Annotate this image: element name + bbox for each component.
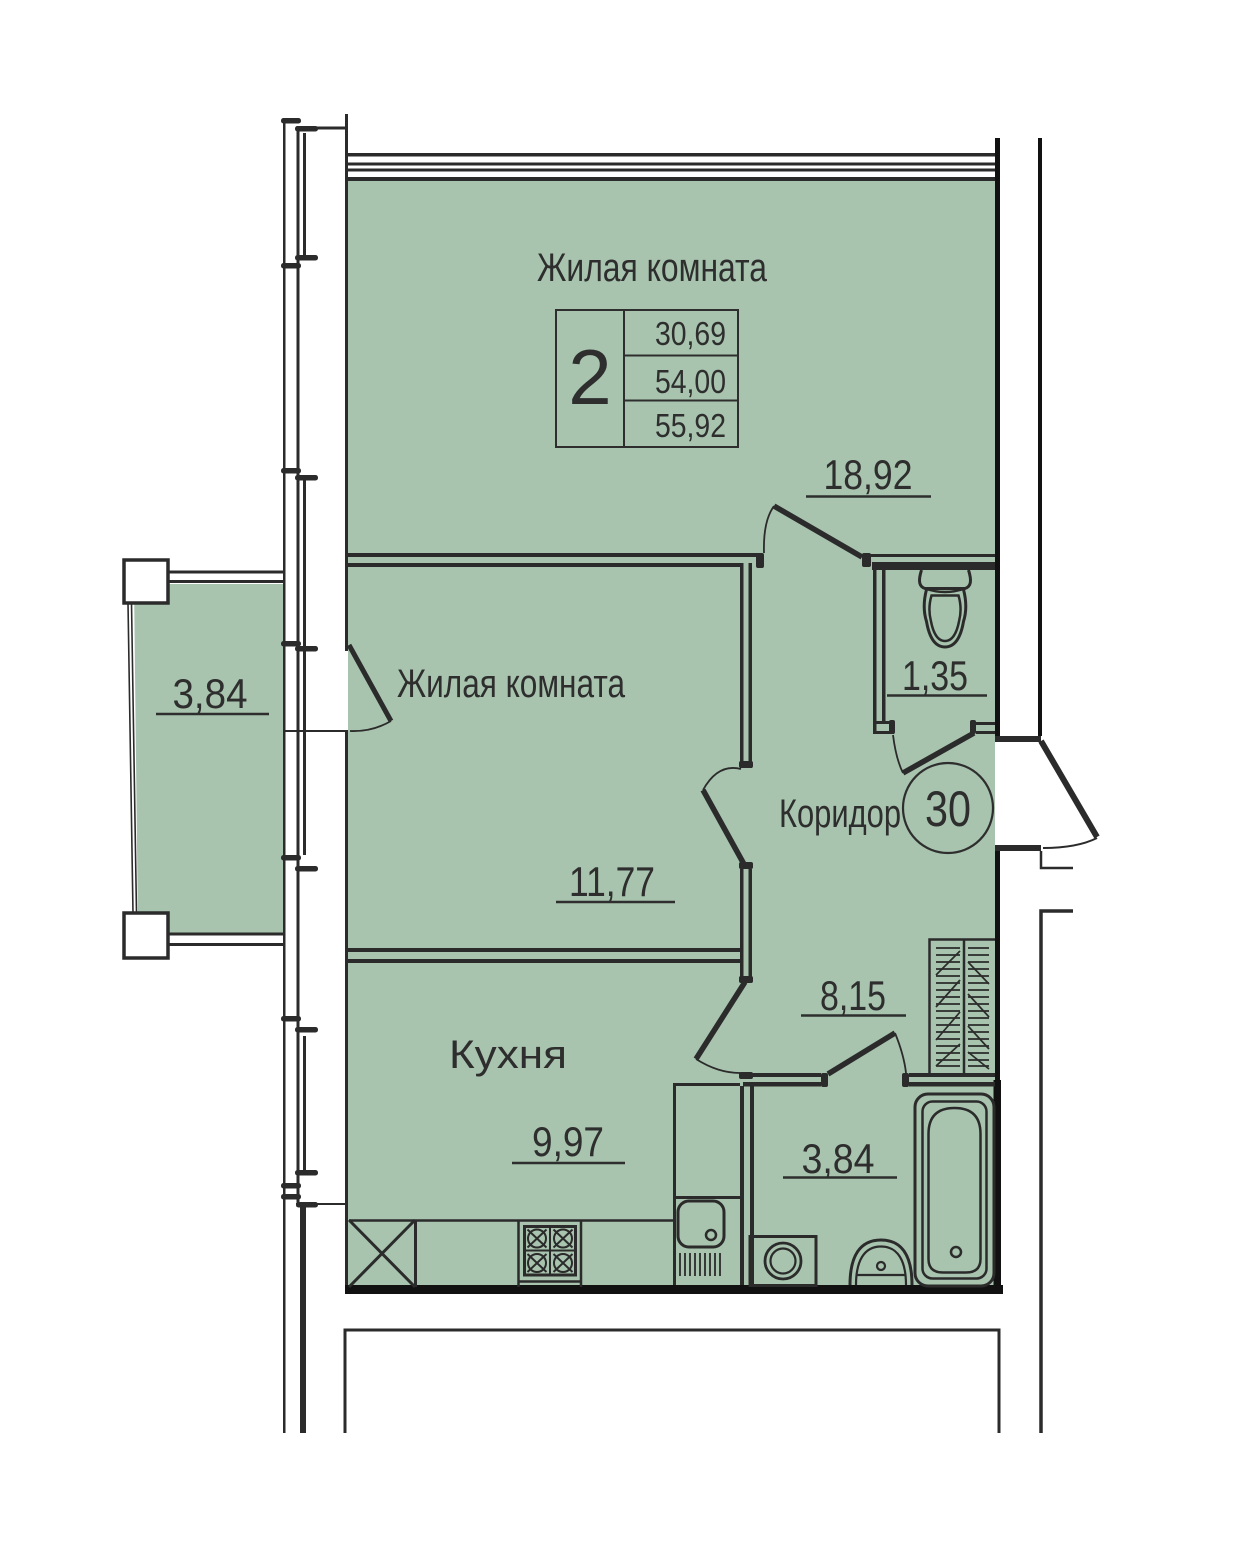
svg-text:Жилая комната: Жилая комната xyxy=(397,662,626,706)
svg-text:54,00: 54,00 xyxy=(655,363,726,400)
svg-text:Жилая комната: Жилая комната xyxy=(537,246,768,290)
svg-text:1,35: 1,35 xyxy=(902,652,968,699)
svg-text:8,15: 8,15 xyxy=(820,972,886,1019)
svg-text:30: 30 xyxy=(925,781,971,837)
svg-text:30,69: 30,69 xyxy=(655,315,726,352)
svg-text:Коридор: Коридор xyxy=(779,792,901,836)
svg-text:Кухня: Кухня xyxy=(449,1033,567,1077)
svg-text:55,92: 55,92 xyxy=(655,407,726,444)
svg-text:9,97: 9,97 xyxy=(532,1118,604,1165)
svg-text:3,84: 3,84 xyxy=(173,670,248,717)
svg-text:2: 2 xyxy=(568,333,611,421)
svg-text:18,92: 18,92 xyxy=(824,451,913,498)
svg-text:3,84: 3,84 xyxy=(802,1135,875,1182)
svg-text:11,77: 11,77 xyxy=(569,858,655,905)
